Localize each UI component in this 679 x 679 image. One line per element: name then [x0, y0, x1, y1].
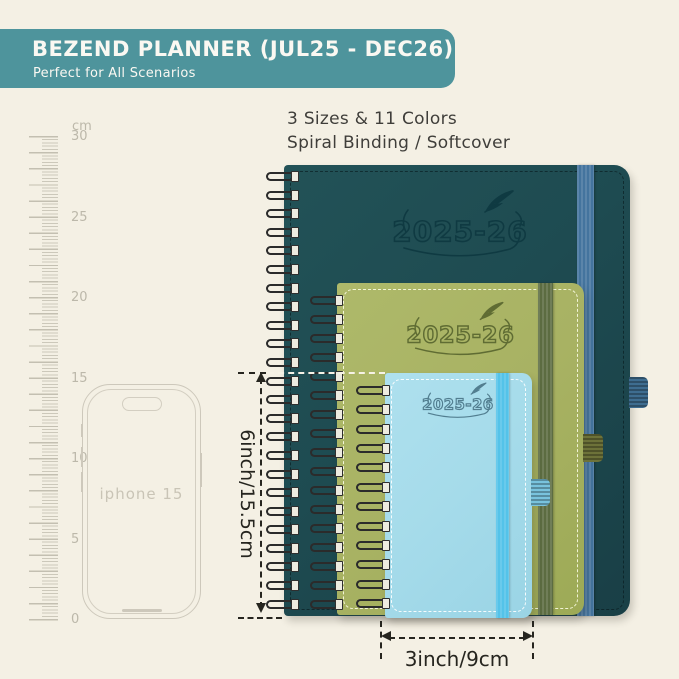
spiral-coil [310, 410, 343, 419]
arrow-right-icon [523, 631, 533, 641]
spiral-coil [356, 599, 390, 608]
spiral-coil [266, 228, 299, 237]
spiral-coil [310, 296, 343, 305]
feather-icon [485, 190, 513, 212]
spiral-binding-small [356, 386, 390, 608]
arrow-down-icon [256, 603, 266, 613]
spiral-coil [266, 581, 299, 590]
spiral-coil [266, 339, 299, 348]
ruler-label-0: 0 [71, 612, 97, 627]
ruler-label-25: 25 [71, 210, 97, 225]
spiral-coil [266, 432, 299, 441]
feature-line-binding: Spiral Binding / Softcover [287, 131, 510, 155]
spiral-coil [266, 562, 299, 571]
spiral-coil [266, 600, 299, 609]
spiral-coil [310, 543, 343, 552]
spiral-coil [310, 467, 343, 476]
spiral-coil [356, 502, 390, 511]
power-button [200, 453, 202, 487]
width-dim-label: 3inch/9cm [405, 647, 510, 671]
mute-switch [81, 424, 83, 437]
spiral-coil [310, 505, 343, 514]
year-text-large: 2025-26 [392, 215, 528, 248]
spiral-coil [310, 600, 343, 609]
spiral-coil [310, 486, 343, 495]
product-size-comparison-image: BEZEND PLANNER (JUL25 - DEC26) Perfect f… [0, 0, 679, 679]
iphone-outline: iphone 15 [82, 384, 201, 619]
year-emboss-medium: 2025-26 [406, 292, 518, 366]
spiral-binding-large [266, 172, 299, 609]
spiral-coil [266, 358, 299, 367]
feature-text: 3 Sizes & 11 Colors Spiral Binding / Sof… [287, 107, 510, 155]
spiral-coil [356, 463, 390, 472]
spiral-coil [356, 560, 390, 569]
dynamic-island [122, 397, 162, 411]
height-dim-label: 6inch/15.5cm [236, 429, 258, 559]
year-text-small: 2025-26 [422, 396, 494, 413]
spiral-coil [356, 483, 390, 492]
spiral-coil [266, 209, 299, 218]
height-reference-dashed-line [268, 372, 385, 374]
spiral-coil [266, 265, 299, 274]
spiral-coil [266, 488, 299, 497]
spiral-coil [356, 580, 390, 589]
year-emboss-small: 2025-26 [422, 376, 496, 425]
ruler-label-15: 15 [71, 371, 97, 386]
spiral-coil [310, 448, 343, 457]
spiral-coil [266, 284, 299, 293]
spiral-coil [266, 377, 299, 386]
banner-subtitle: Perfect for All Scenarios [33, 66, 196, 81]
spiral-coil [310, 334, 343, 343]
spiral-coil [266, 172, 299, 181]
feather-icon [480, 302, 502, 320]
feature-line-sizes: 3 Sizes & 11 Colors [287, 107, 510, 131]
spiral-coil [266, 414, 299, 423]
spiral-coil [356, 444, 390, 453]
planner-small-blue: 2025-26 [385, 373, 532, 618]
spiral-coil [356, 425, 390, 434]
spiral-coil [356, 522, 390, 531]
spiral-coil [266, 191, 299, 200]
spiral-coil [266, 246, 299, 255]
home-indicator [122, 609, 162, 612]
ruler-label-20: 20 [71, 290, 97, 305]
spiral-coil [266, 470, 299, 479]
spiral-coil [356, 405, 390, 414]
elastic-band-medium [538, 283, 553, 615]
spiral-binding-medium [310, 296, 343, 609]
height-dim-bottom-tick [238, 617, 282, 619]
spiral-coil [310, 524, 343, 533]
spiral-coil [266, 507, 299, 516]
year-text-medium: 2025-26 [406, 323, 514, 349]
ruler-major-ticks [29, 136, 58, 621]
spiral-coil [356, 386, 390, 395]
spiral-coil [310, 562, 343, 571]
banner: BEZEND PLANNER (JUL25 - DEC26) Perfect f… [0, 29, 455, 88]
spiral-coil [266, 525, 299, 534]
spiral-coil [310, 391, 343, 400]
pen-loop-large [629, 377, 648, 408]
spiral-coil [310, 353, 343, 362]
spiral-coil [266, 321, 299, 330]
volume-up-button [81, 447, 83, 467]
height-dim-line [260, 378, 262, 608]
pen-loop-medium [583, 434, 603, 462]
pen-loop-small [531, 479, 550, 506]
width-dim-line [389, 637, 525, 639]
iphone-label: iphone 15 [83, 485, 200, 503]
banner-title: BEZEND PLANNER (JUL25 - DEC26) [32, 37, 454, 61]
spiral-coil [266, 395, 299, 404]
elastic-band-small [496, 373, 509, 618]
feather-icon [471, 383, 486, 395]
arrow-left-icon [381, 631, 391, 641]
volume-down-button [81, 472, 83, 492]
spiral-coil [266, 451, 299, 460]
arrow-up-icon [256, 372, 266, 382]
spiral-coil [356, 541, 390, 550]
spiral-coil [266, 302, 299, 311]
spiral-coil [310, 315, 343, 324]
spiral-coil [266, 544, 299, 553]
year-emboss-large: 2025-26 [392, 178, 532, 270]
ruler-label-30: 30 [71, 129, 97, 144]
spiral-coil [310, 581, 343, 590]
spiral-coil [310, 429, 343, 438]
